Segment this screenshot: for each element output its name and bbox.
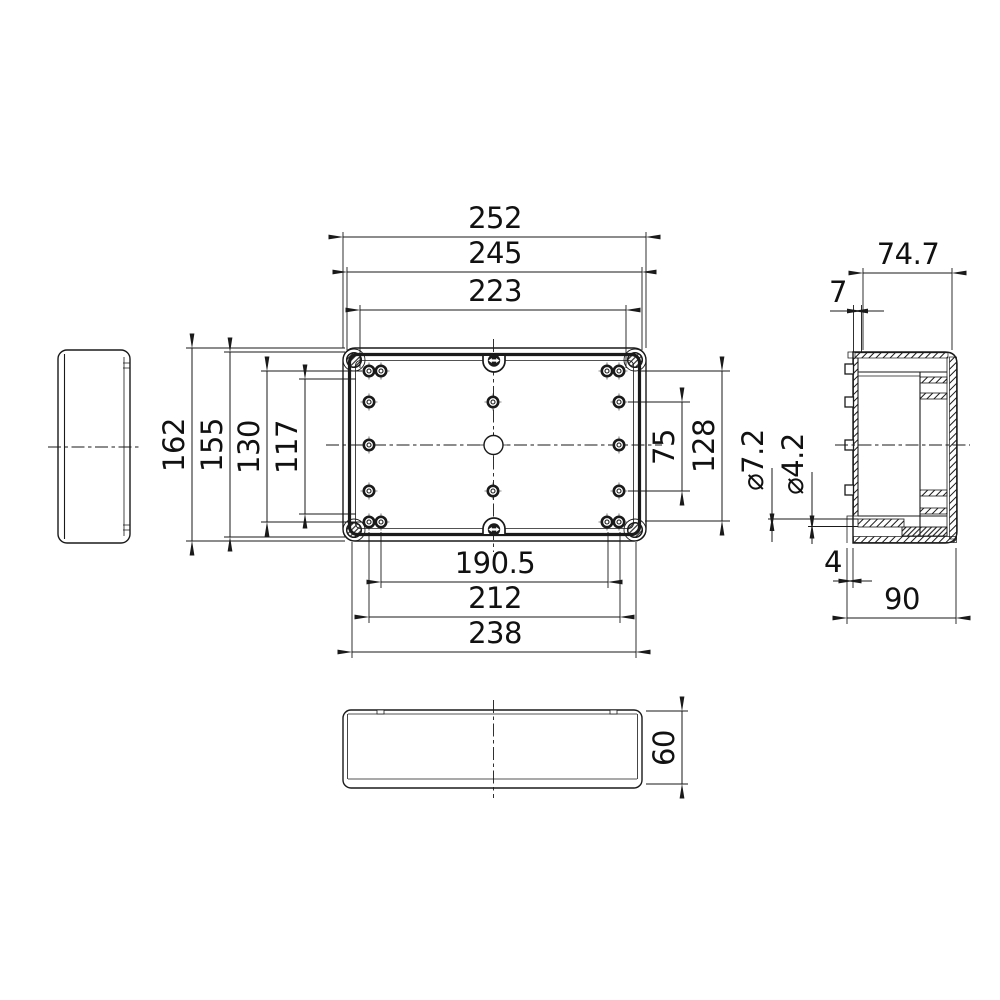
dim-label-252: 252 [468,201,522,235]
dim-130: 130 [232,371,267,522]
dim-label-74-7: 74.7 [877,237,940,271]
mounting-hole [611,514,628,531]
mounting-hole [361,437,378,454]
plan-view [326,339,662,552]
mounting-hole [611,437,628,454]
mounting-hole [373,363,390,380]
center-hole [480,432,507,458]
corner-screw [624,349,646,371]
dim-label-dia-7-2: ⌀7.2 [736,429,770,491]
dim-label-60: 60 [647,730,681,766]
dim-label-7: 7 [829,275,847,309]
section-view [835,352,970,543]
dim-dia-4-2: ⌀4.2 [776,433,812,544]
dim-label-238: 238 [468,616,522,650]
dim-245: 245 [347,236,642,272]
dim-4: 4 [824,545,872,581]
dim-128: 128 [687,371,722,521]
mounting-hole [611,483,628,500]
rib-section [920,393,947,399]
dim-7: 7 [829,275,884,311]
dim-60: 60 [647,711,682,784]
front-view [343,700,642,798]
mounting-hole [361,483,378,500]
extension-lines [186,232,956,784]
dim-252: 252 [343,201,646,237]
dim-dia-7-2: ⌀7.2 [736,429,772,542]
dim-238: 238 [352,616,636,652]
wall-tab [845,485,854,495]
enclosure-dimension-drawing: 252 245 223 190.5 212 238 162 155 130 11… [0,0,1000,1000]
dim-155: 155 [195,352,230,537]
technical-drawing-canvas: 252 245 223 190.5 212 238 162 155 130 11… [0,0,1000,1000]
dim-190-5: 190.5 [381,546,608,582]
dim-75: 75 [647,402,682,491]
dim-162: 162 [157,348,192,541]
dim-label-dia-4-2: ⌀4.2 [776,433,810,495]
mounting-hole [373,514,390,531]
dim-label-162: 162 [157,418,191,472]
mounting-hole [485,483,502,500]
dim-label-245: 245 [468,236,522,270]
dim-label-155: 155 [195,418,229,472]
flange-section [858,519,904,527]
dim-label-212: 212 [468,581,522,615]
rib-section [920,490,947,496]
wall-tab [845,364,854,374]
dim-label-190-5: 190.5 [455,546,536,580]
latch-tab-bottom [483,518,505,536]
boss-section [902,527,947,536]
dim-74-7: 74.7 [863,237,952,273]
rib-section [920,508,947,514]
dim-90: 90 [847,582,956,618]
wall-tab [845,397,854,407]
dim-label-130: 130 [232,420,266,474]
dim-label-75: 75 [647,429,681,465]
corner-screw [343,349,365,371]
dim-label-117: 117 [270,420,304,474]
mounting-hole [361,394,378,411]
rib-section [920,377,947,383]
dim-label-128: 128 [687,419,721,473]
dim-117: 117 [270,379,305,514]
dim-212: 212 [369,581,620,617]
latch-tab-top [483,354,505,372]
dim-223: 223 [360,274,626,310]
dim-label-90: 90 [884,582,920,616]
mounting-hole [485,394,502,411]
end-view-left [48,350,140,543]
dim-label-223: 223 [468,274,522,308]
dim-label-4: 4 [824,545,842,579]
mounting-hole [611,394,628,411]
